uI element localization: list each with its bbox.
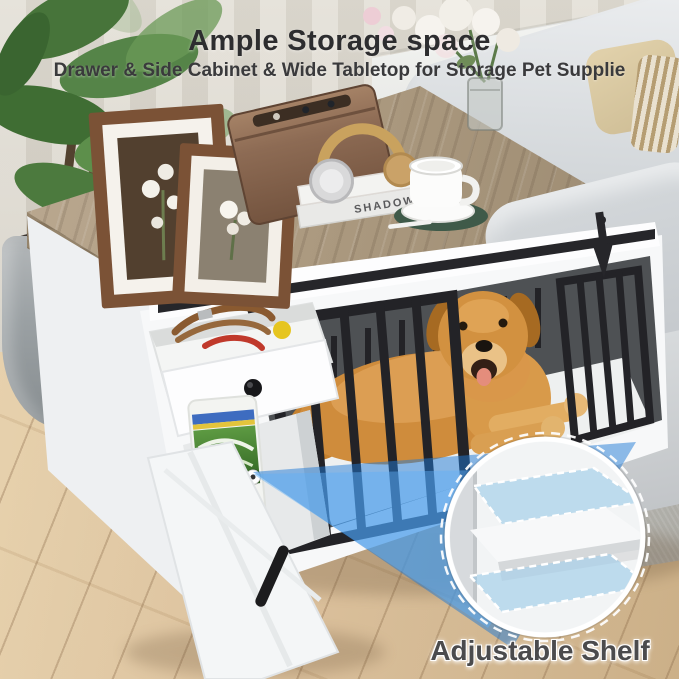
dog-nose [476, 340, 493, 352]
dog-tongue [477, 368, 492, 386]
adjustable-shelf-caption: Adjustable Shelf [406, 635, 674, 667]
dog-toy-ball [273, 321, 291, 339]
dog-eye [499, 319, 508, 328]
headline-title: Ample Storage space [0, 25, 679, 58]
furniture-illustration: SHADOW [0, 0, 679, 679]
product-photo-scene: SHADOW [0, 0, 679, 679]
headline-subtitle: Drawer & Side Cabinet & Wide Tabletop fo… [0, 60, 679, 82]
drawer-knob [244, 379, 262, 397]
